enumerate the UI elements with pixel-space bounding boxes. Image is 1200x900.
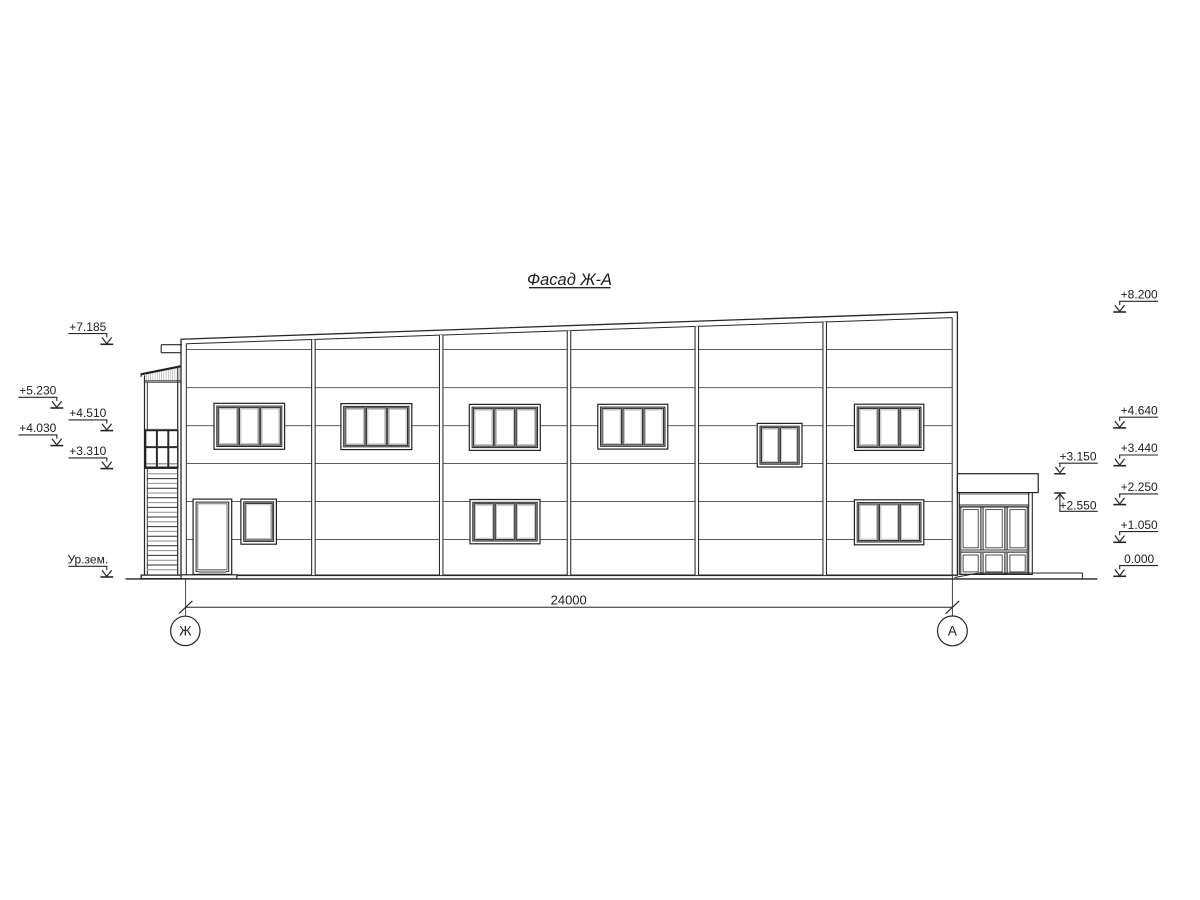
svg-text:+3.440: +3.440 [1121, 441, 1158, 455]
svg-text:24000: 24000 [551, 593, 587, 608]
svg-text:+3.310: +3.310 [69, 444, 106, 458]
svg-text:+2.250: +2.250 [1121, 480, 1158, 494]
svg-text:Ж: Ж [179, 624, 192, 639]
svg-text:+1.050: +1.050 [1121, 518, 1158, 532]
svg-text:+4.510: +4.510 [69, 406, 106, 420]
svg-text:+7.185: +7.185 [69, 320, 106, 334]
svg-text:+2.550: +2.550 [1059, 498, 1096, 512]
svg-text:А: А [948, 624, 957, 639]
svg-text:0.000: 0.000 [1124, 552, 1154, 566]
svg-text:Фасад Ж-А: Фасад Ж-А [527, 271, 612, 289]
svg-text:+5.230: +5.230 [19, 384, 56, 398]
svg-text:+3.150: +3.150 [1059, 449, 1096, 463]
svg-text:+4.030: +4.030 [19, 421, 56, 435]
svg-text:+4.640: +4.640 [1121, 403, 1158, 417]
svg-text:+8.200: +8.200 [1121, 288, 1158, 302]
svg-text:Ур.зем.: Ур.зем. [67, 553, 108, 567]
